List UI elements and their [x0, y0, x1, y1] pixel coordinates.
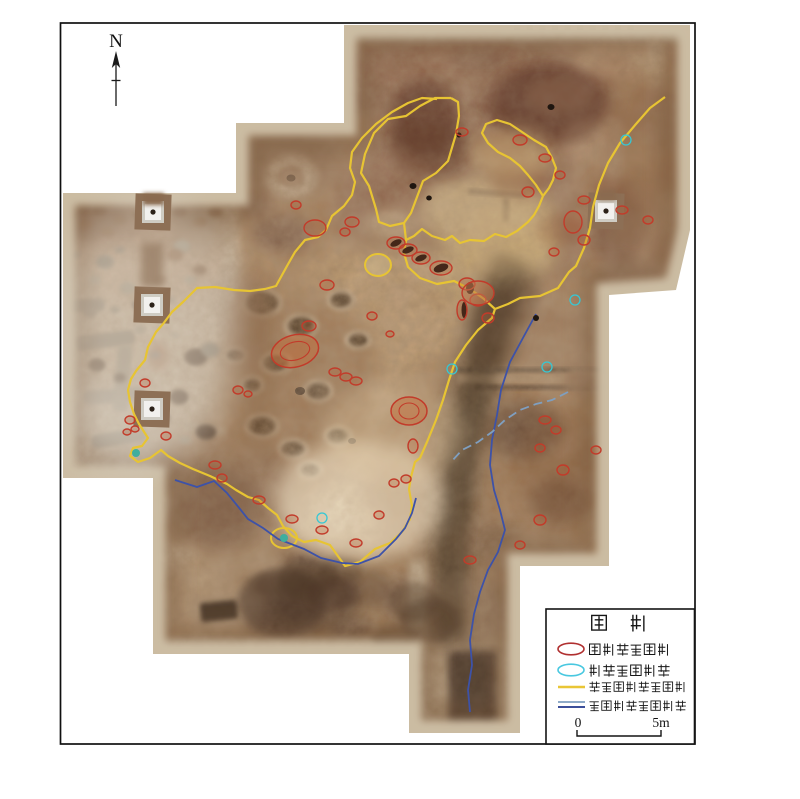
svg-text:0: 0 — [575, 715, 582, 730]
svg-text:5m: 5m — [652, 715, 670, 730]
svg-text:N: N — [109, 31, 123, 52]
